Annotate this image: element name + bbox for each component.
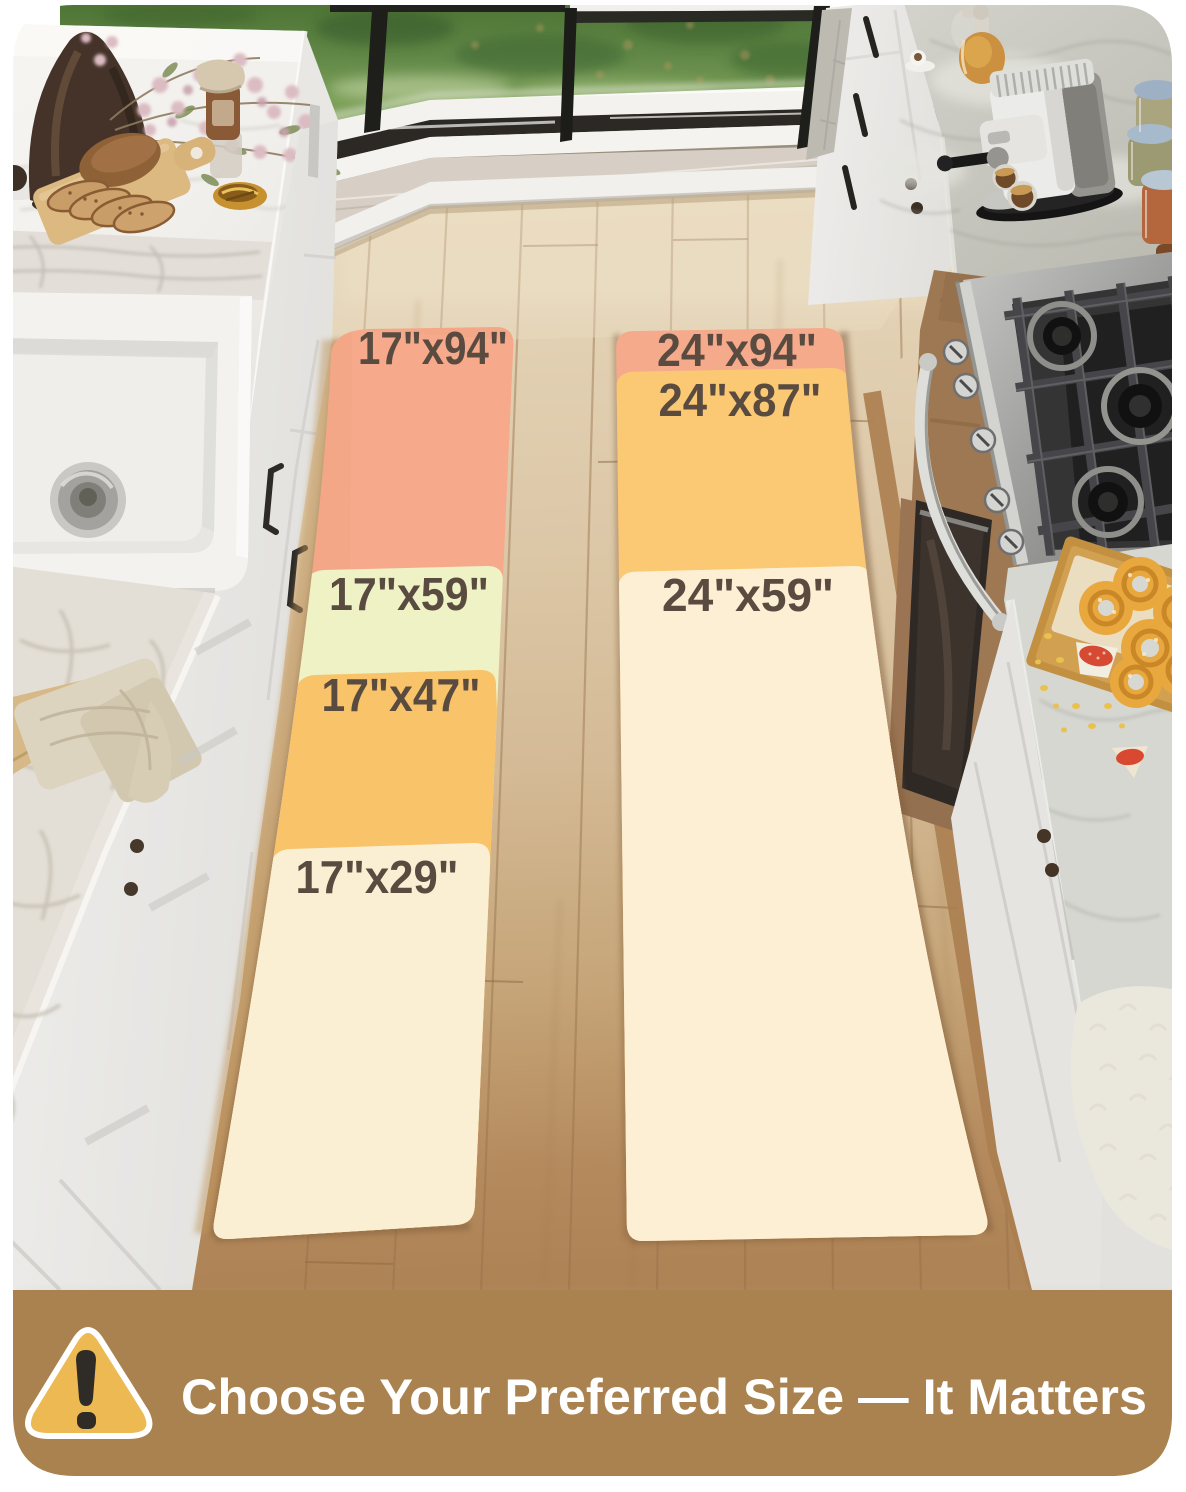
svg-text:17"x94": 17"x94" [358,322,508,374]
svg-text:24"x59": 24"x59" [662,569,834,621]
svg-text:17"x47": 17"x47" [322,669,481,721]
svg-text:24"x94": 24"x94" [657,324,817,376]
svg-text:Choose Your Preferred Size — I: Choose Your Preferred Size — It Matters [181,1369,1147,1425]
svg-text:24"x87": 24"x87" [659,374,822,426]
svg-text:17"x59": 17"x59" [329,568,489,620]
svg-text:17"x29": 17"x29" [296,851,459,903]
